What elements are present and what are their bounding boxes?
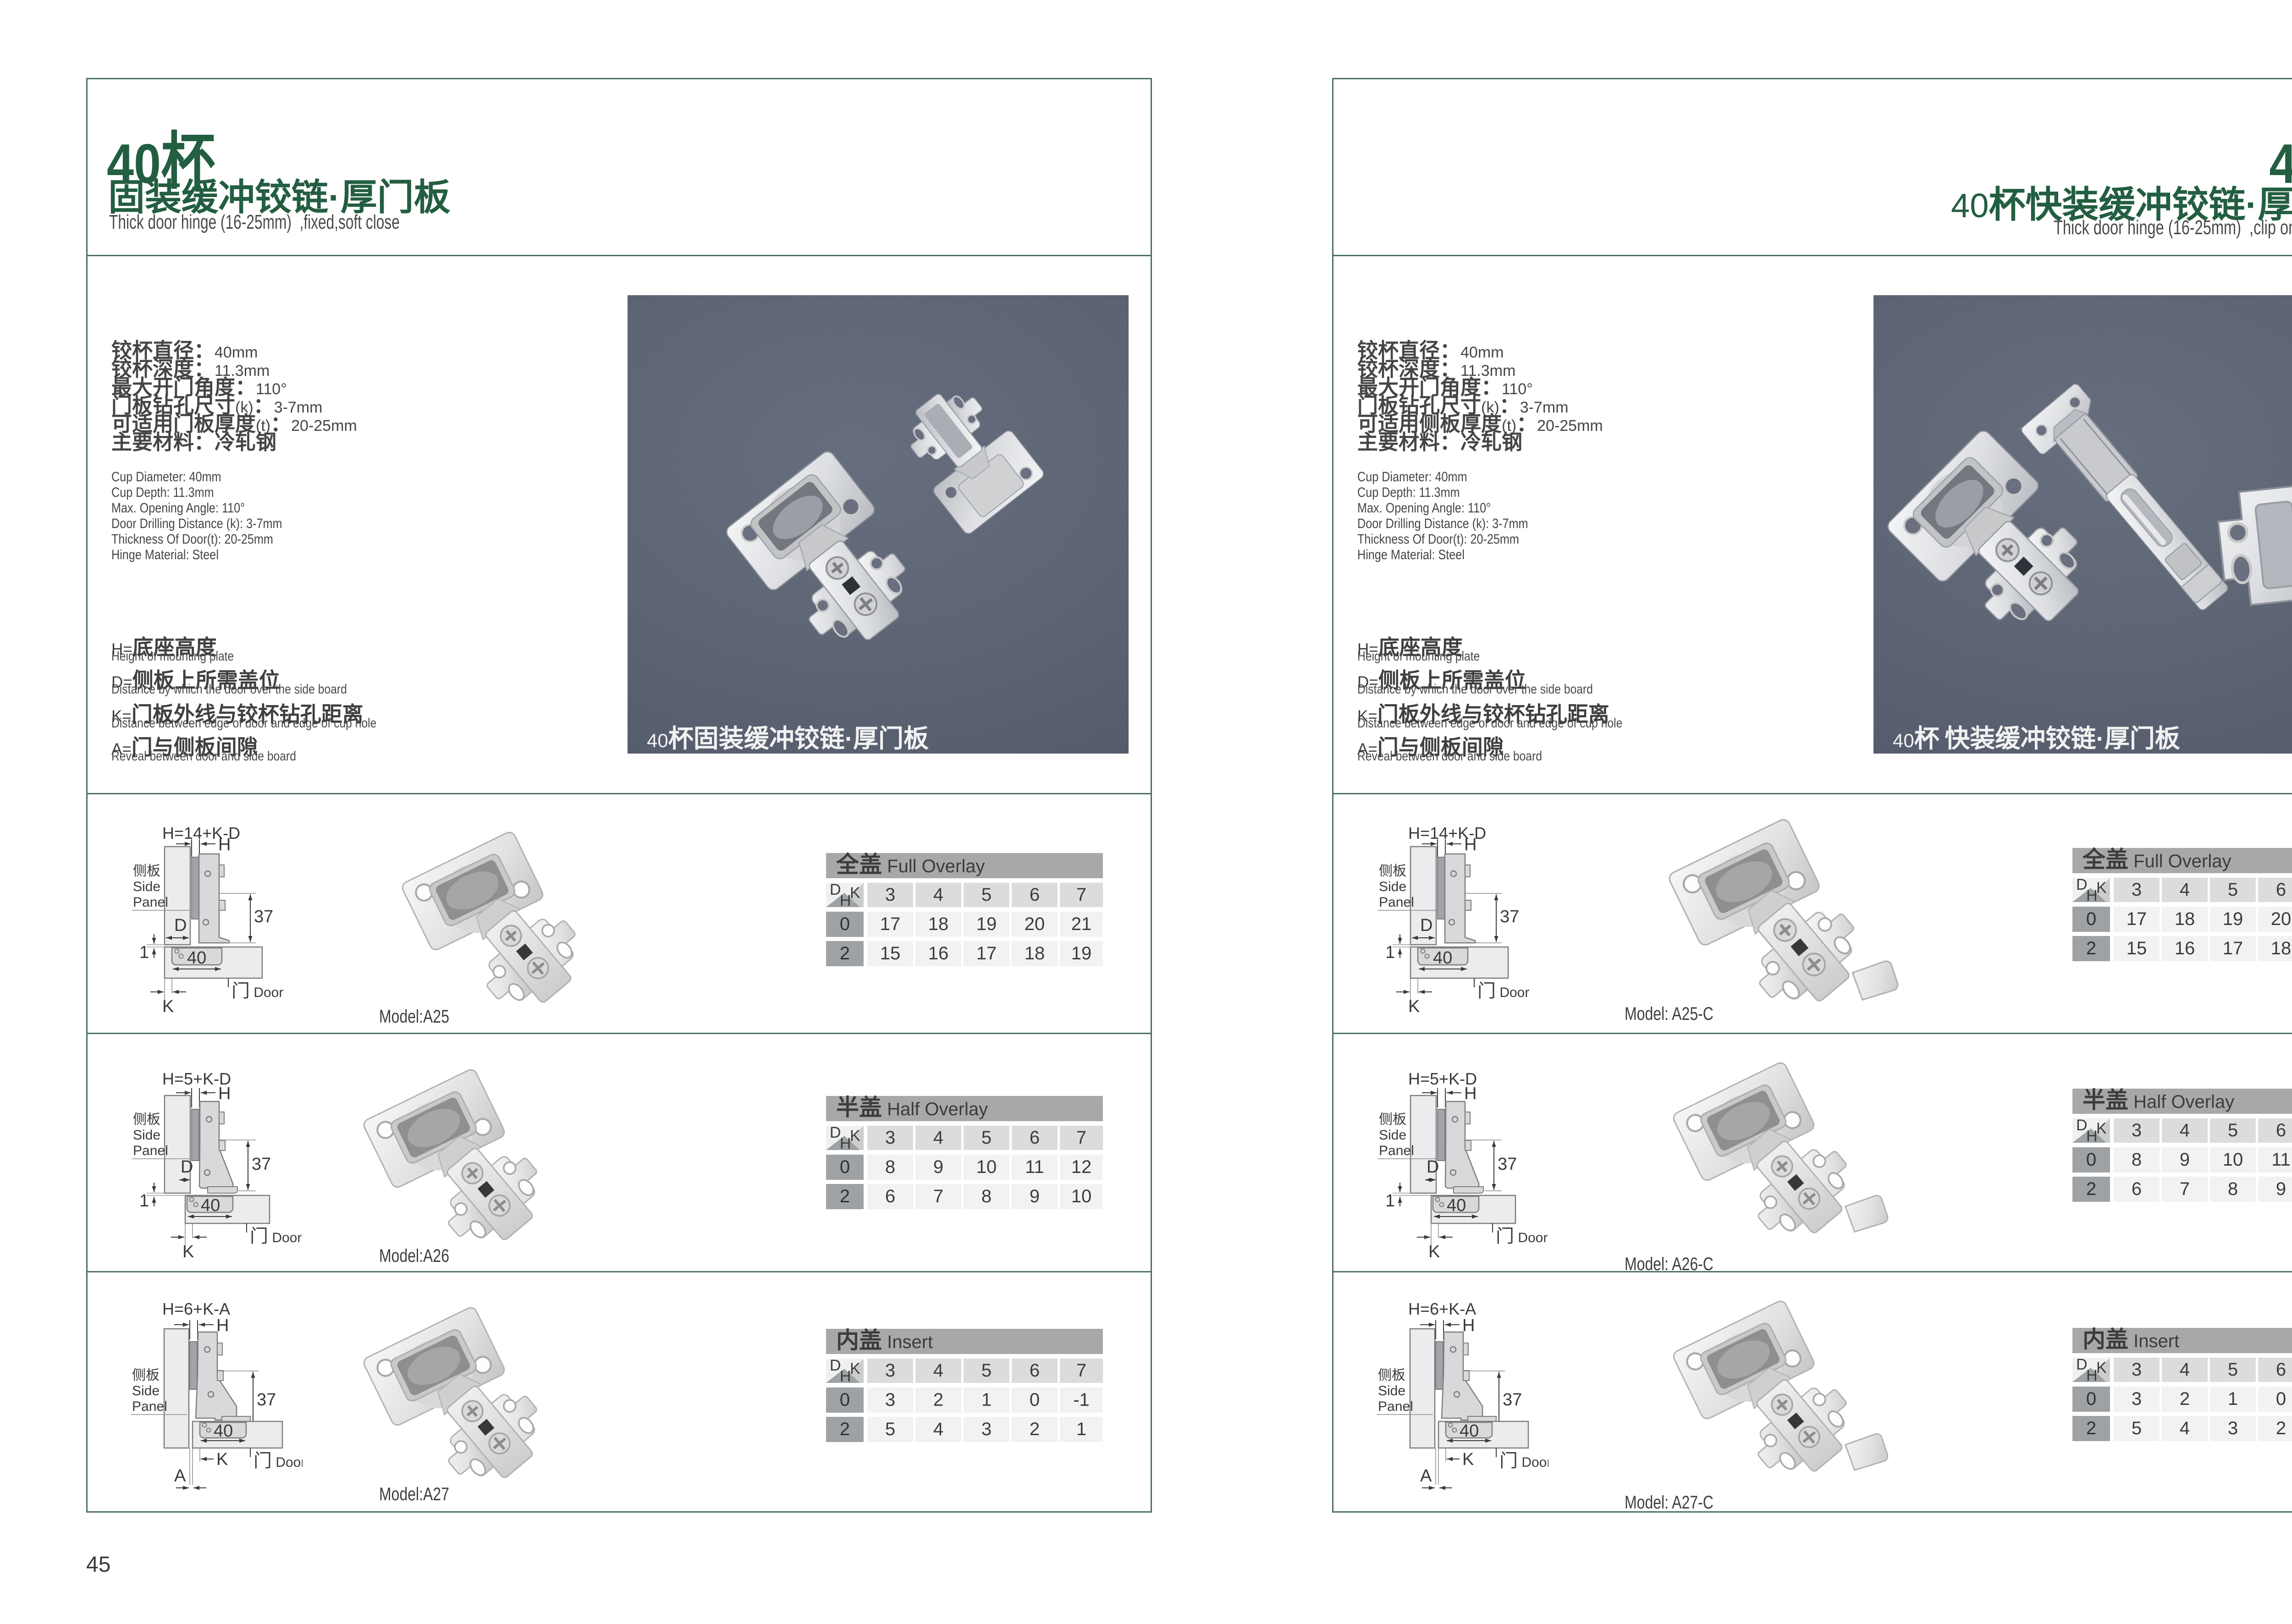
svg-text:H: H — [2086, 887, 2098, 902]
svg-text:K: K — [850, 1127, 860, 1145]
svg-text:1: 1 — [1385, 1191, 1395, 1211]
svg-text:H: H — [218, 835, 231, 854]
svg-text:A: A — [1420, 1466, 1432, 1486]
svg-text:H: H — [1464, 1084, 1477, 1103]
svg-text:Side: Side — [133, 1128, 160, 1143]
svg-text:侧板: 侧板 — [1378, 1368, 1405, 1383]
svg-text:侧板: 侧板 — [132, 1368, 160, 1383]
svg-text:37: 37 — [257, 1390, 276, 1409]
svg-text:Side: Side — [133, 879, 160, 894]
svg-text:K: K — [182, 1242, 194, 1261]
svg-text:Panel: Panel — [133, 1143, 168, 1158]
svg-text:H: H — [2086, 1128, 2098, 1143]
svg-text:Panel: Panel — [1379, 1143, 1414, 1158]
svg-text:H: H — [840, 1135, 851, 1150]
svg-text:D: D — [181, 1157, 193, 1177]
svg-text:H: H — [840, 892, 851, 907]
svg-text:37: 37 — [252, 1155, 271, 1174]
svg-text:D: D — [2076, 878, 2088, 893]
svg-text:D: D — [830, 883, 841, 898]
svg-text:D: D — [174, 916, 187, 935]
svg-text:37: 37 — [1498, 1155, 1517, 1174]
svg-text:H: H — [2086, 1367, 2098, 1382]
svg-text:侧板: 侧板 — [1379, 1112, 1406, 1127]
svg-text:侧板: 侧板 — [133, 864, 160, 879]
svg-text:Side: Side — [1378, 1383, 1405, 1398]
svg-text:Panel: Panel — [1378, 1399, 1413, 1414]
svg-text:1: 1 — [139, 943, 149, 962]
svg-text:40: 40 — [1460, 1421, 1479, 1441]
svg-text:门 Door: 门 Door — [231, 981, 283, 1001]
svg-text:侧板: 侧板 — [1379, 864, 1406, 879]
svg-text:K: K — [2096, 1120, 2107, 1137]
svg-text:Panel: Panel — [132, 1399, 167, 1414]
svg-text:K: K — [2096, 1359, 2107, 1376]
svg-text:A: A — [174, 1466, 186, 1486]
svg-text:D: D — [2076, 1118, 2088, 1134]
svg-text:K: K — [2096, 879, 2107, 897]
svg-text:Panel: Panel — [133, 895, 168, 910]
svg-text:H: H — [1464, 835, 1477, 854]
svg-text:37: 37 — [1500, 907, 1519, 926]
svg-text:K: K — [850, 1360, 860, 1377]
svg-text:37: 37 — [254, 907, 273, 926]
svg-text:H: H — [218, 1084, 231, 1103]
svg-text:Side: Side — [1379, 879, 1406, 894]
svg-text:门 Door: 门 Door — [250, 1226, 302, 1246]
svg-text:37: 37 — [1503, 1390, 1522, 1409]
svg-text:侧板: 侧板 — [133, 1112, 160, 1127]
svg-text:K: K — [162, 997, 174, 1016]
svg-text:门 Door: 门 Door — [253, 1451, 303, 1471]
svg-text:H: H — [840, 1368, 851, 1383]
svg-text:Panel: Panel — [1379, 895, 1414, 910]
svg-text:D: D — [830, 1359, 841, 1374]
svg-text:Side: Side — [1379, 1128, 1406, 1143]
svg-text:D: D — [1420, 916, 1432, 935]
svg-text:D: D — [1427, 1157, 1439, 1177]
svg-text:门 Door: 门 Door — [1477, 981, 1529, 1001]
svg-text:K: K — [1462, 1450, 1474, 1469]
svg-text:40: 40 — [187, 948, 206, 968]
svg-text:K: K — [1428, 1242, 1440, 1261]
svg-text:门 Door: 门 Door — [1496, 1226, 1548, 1246]
svg-text:1: 1 — [1385, 943, 1395, 962]
svg-text:40: 40 — [201, 1196, 220, 1215]
svg-text:1: 1 — [139, 1191, 149, 1211]
svg-text:40: 40 — [214, 1421, 233, 1441]
svg-text:Side: Side — [132, 1383, 160, 1398]
svg-text:K: K — [850, 884, 860, 902]
svg-text:40: 40 — [1433, 948, 1452, 968]
svg-text:H: H — [216, 1316, 229, 1335]
svg-text:40: 40 — [1447, 1196, 1466, 1215]
svg-text:门 Door: 门 Door — [1499, 1451, 1548, 1471]
svg-text:D: D — [830, 1126, 841, 1141]
svg-text:K: K — [1408, 997, 1420, 1016]
svg-text:H: H — [1462, 1316, 1475, 1335]
svg-text:D: D — [2076, 1358, 2088, 1373]
svg-text:K: K — [216, 1450, 228, 1469]
